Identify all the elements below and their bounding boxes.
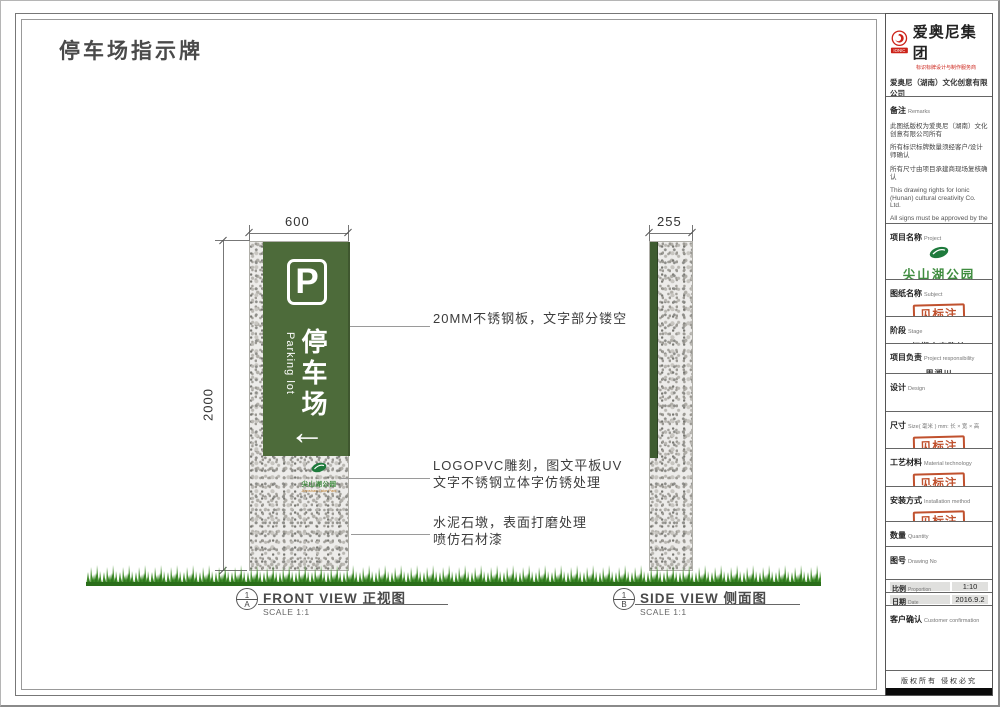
remark-cn-2: 所有标识标牌数量须经客户/设计师确认	[890, 144, 988, 160]
remark-en-1: This drawing rights for Ionic (Hunan) cu…	[890, 187, 988, 210]
dim-line-height	[223, 241, 224, 571]
left-arrow-icon: ←	[283, 414, 331, 450]
customer-confirmation-section: 客户确认Customer confirmation	[886, 606, 992, 671]
callout-divider	[237, 599, 257, 600]
proportion-value: 1:10	[952, 582, 988, 591]
grass-strip	[86, 563, 821, 586]
park-logo-icon	[926, 246, 952, 259]
company-tagline: 标识标牌设计与制作服务商	[916, 64, 988, 71]
material-section: 工艺材料Material technology 见标注	[886, 449, 992, 487]
date-section: 日期Date 2016.9.2	[886, 593, 992, 606]
side-view-callout-circle: 1 B	[613, 588, 635, 610]
date-value: 2016.9.2	[952, 595, 988, 604]
page-title: 停车场指示牌	[59, 35, 203, 65]
annotation-cement-base: 水泥石墩，表面打磨处理 喷仿石材漆	[433, 514, 587, 548]
side-view-underline	[635, 604, 800, 605]
side-view-sign-panel-edge	[650, 242, 658, 458]
front-view-scale: SCALE 1:1	[263, 607, 310, 617]
front-view-underline	[258, 604, 448, 605]
design-section: 设计Design	[886, 374, 992, 412]
size-section: 尺寸Size( 毫米 ) mm: 长 × 宽 × 高 见标注	[886, 412, 992, 449]
annotation-logo-pvc: LOGOPVC雕刻，图文平板UV 文字不锈钢立体字仿锈处理	[433, 457, 622, 491]
installation-section: 安装方式Installation method 见标注	[886, 487, 992, 522]
pillar-logo-cn: 尖山湖公园	[293, 478, 345, 488]
remarks-section: 备注Remarks 此图纸版权为爱奥尼（湖南）文化创意有限公司所有 所有标识标牌…	[886, 97, 992, 224]
subject-section: 图纸名称Subject 见标注	[886, 280, 992, 317]
sign-text-english: Parking lot	[284, 332, 296, 395]
remark-cn-3: 所有尺寸由项目承建商现场复核确认	[890, 166, 988, 182]
see-note-stamp: 见标注	[913, 435, 965, 449]
stage-section: 阶段Stage 初期方案确认	[886, 317, 992, 344]
dim-line-side	[649, 233, 693, 234]
project-section: 项目名称Project 尖山湖公园 Jianshan Lake Park	[886, 224, 992, 280]
front-view-sign-panel: P Parking lot 停车场 ←	[263, 242, 350, 456]
remark-en-2: All signs must be approved by the custom…	[890, 215, 988, 224]
dim-line-width	[249, 233, 349, 234]
sign-text-chinese: 停车场	[300, 328, 326, 421]
drawing-sheet: 停车场指示牌 P Parking lot 停车场 ← 尖山湖公园 Jiansha…	[0, 0, 1000, 707]
company-section: IONIC 爱奥尼集团 标识标牌设计与制作服务商 爱奥尼（湖南）文化创意有限公司…	[886, 14, 992, 97]
title-block: IONIC 爱奥尼集团 标识标牌设计与制作服务商 爱奥尼（湖南）文化创意有限公司…	[885, 13, 993, 696]
front-view-callout-circle: 1 A	[236, 588, 258, 610]
side-view-scale: SCALE 1:1	[640, 607, 687, 617]
quantity-section: 数量Quantity	[886, 522, 992, 547]
park-logo-oval-icon	[310, 462, 328, 473]
leader-line-3	[351, 534, 430, 535]
company-name: 爱奥尼（湖南）文化创意有限公司	[890, 77, 988, 97]
dim-width-value: 600	[285, 214, 310, 229]
copyright-notice: 版权所有 侵权必究	[886, 671, 992, 688]
responsibility-section: 项目负责Project responsibility 周湘川	[886, 344, 992, 374]
remark-cn-1: 此图纸版权为爱奥尼（湖南）文化创意有限公司所有	[890, 123, 988, 139]
company-group-name: 爱奥尼集团	[913, 21, 988, 63]
svg-text:IONIC: IONIC	[893, 48, 905, 53]
proportion-section: 比例Proportion 1:10	[886, 580, 992, 593]
leader-line-2	[341, 478, 430, 479]
title-block-bottom-bar	[886, 688, 992, 695]
dim-side-value: 255	[657, 214, 682, 229]
see-note-stamp: 见标注	[913, 472, 965, 487]
parking-p-icon: P	[287, 259, 327, 305]
dim-height-value: 2000	[201, 383, 216, 427]
drawing-no-section: 图号Drawing No	[886, 547, 992, 580]
see-note-stamp: 见标注	[913, 510, 965, 522]
park-name: 尖山湖公园	[890, 264, 988, 280]
leader-line-1	[350, 326, 430, 327]
callout-divider	[614, 599, 634, 600]
annotation-steel-plate: 20MM不锈钢板，文字部分镂空	[433, 310, 627, 327]
pillar-logo-en: Jianshan Lake Park	[293, 488, 345, 493]
ionic-logo-icon: IONIC	[890, 29, 909, 55]
see-note-stamp: 见标注	[913, 303, 965, 317]
pillar-base-logo: 尖山湖公园 Jianshan Lake Park	[293, 460, 345, 493]
